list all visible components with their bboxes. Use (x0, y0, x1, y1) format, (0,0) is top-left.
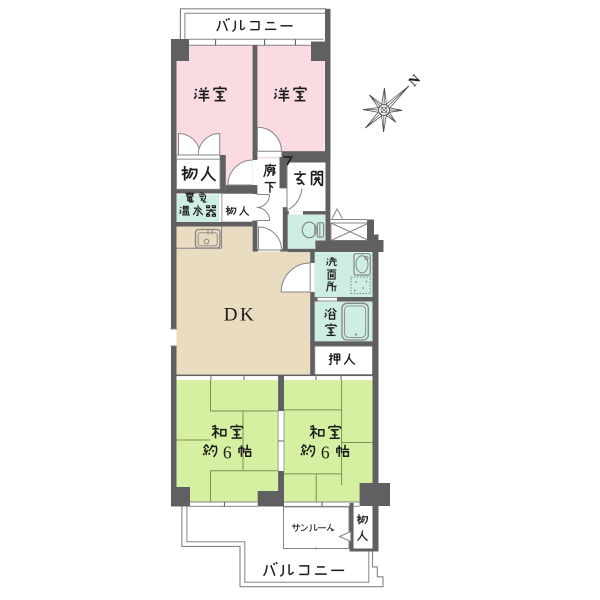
svg-text:6: 6 (321, 442, 330, 462)
svg-text:6: 6 (223, 442, 232, 462)
svg-text:DK: DK (224, 305, 256, 326)
